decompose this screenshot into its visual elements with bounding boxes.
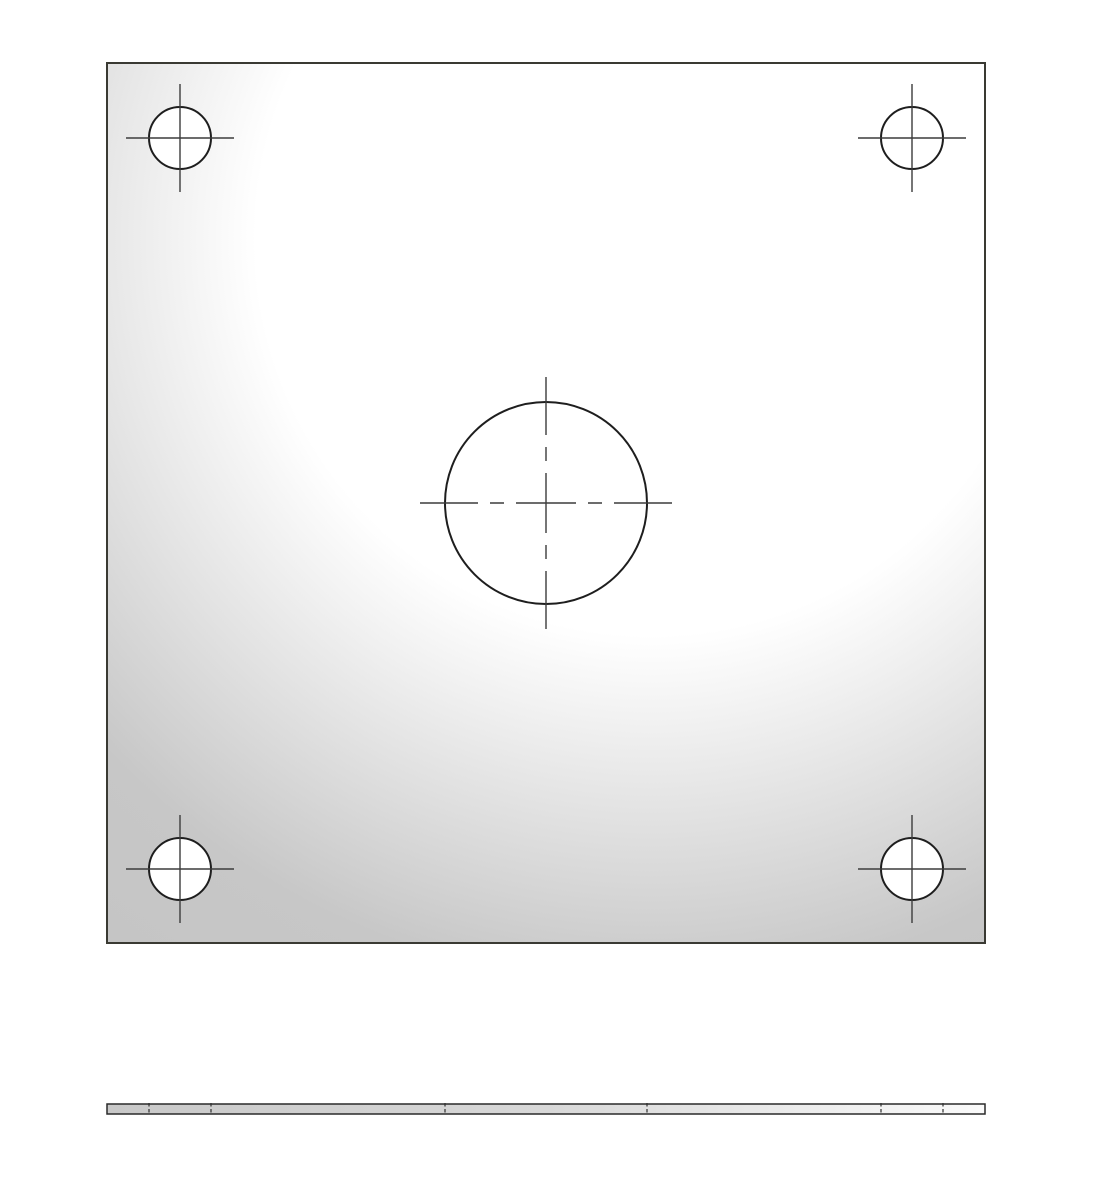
plate-edge-profile (107, 1104, 985, 1114)
front-view-plate (107, 63, 985, 943)
drawing-sheet (0, 0, 1107, 1200)
side-view-plate-edge (107, 1103, 985, 1115)
cad-drawing (0, 0, 1107, 1200)
